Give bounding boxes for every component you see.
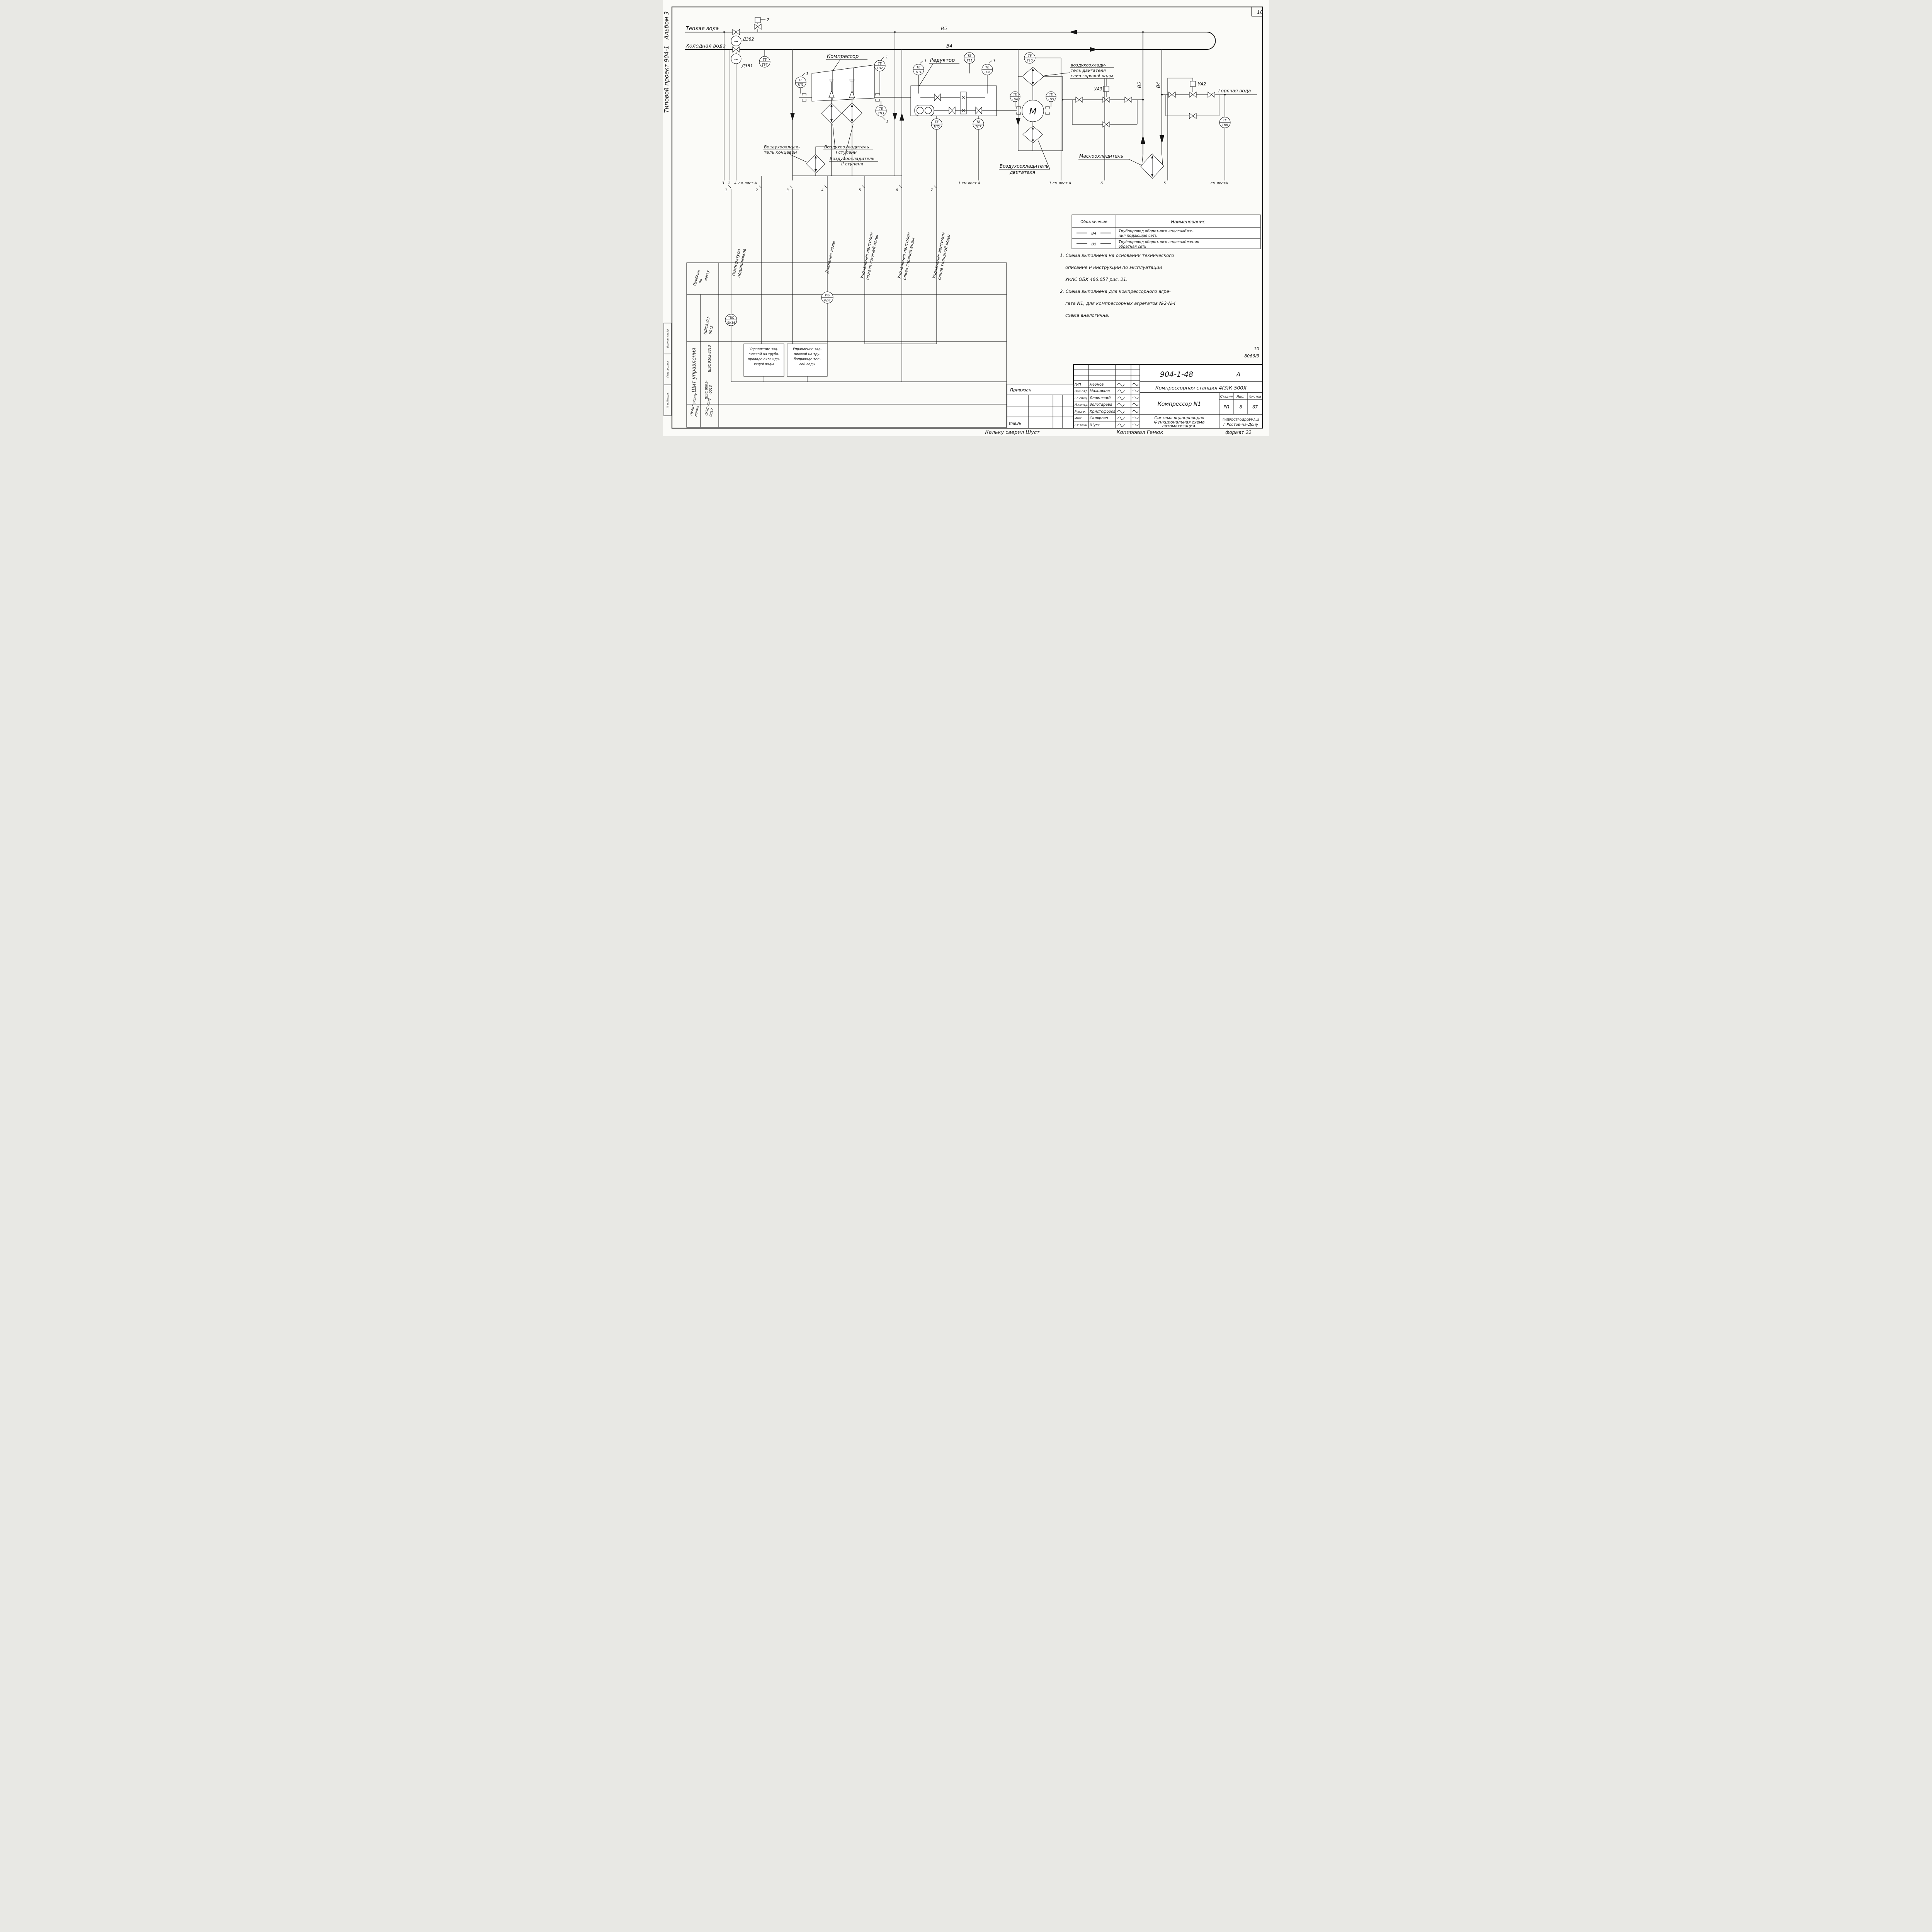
svg-text:5: 5 [1163,181,1166,185]
svg-text:ТП9: ТП9 [1048,97,1054,101]
svg-text:0012: 0012 [709,408,714,417]
svg-text:лой воды: лой воды [799,362,815,366]
svg-text:УКАС ОБХ 466.057 рис. 21.: УКАС ОБХ 466.057 рис. 21. [1065,277,1128,282]
doc-number: 904-1-48 [1160,370,1193,379]
margin-cell-label: Взамен.инв.№ [666,329,669,348]
reducer-label: Редуктор [930,58,955,63]
svg-text:3: 3 [786,188,789,192]
svg-text:Воздухоохладитель: Воздухоохладитель [1000,163,1048,169]
svg-text:2: 2 [755,188,758,192]
svg-text:схема аналогична.: схема аналогична. [1065,313,1109,318]
motor-letter: М [1029,107,1037,117]
engine-cooler-drain-label: воздухоохлади- тель двигателя слив горяч… [1044,63,1114,78]
svg-text:ШЭС 8801-: ШЭС 8801- [705,381,709,399]
svg-text:Золотарева: Золотарева [1090,403,1112,407]
svg-text:РД8: РД8 [824,299,830,302]
svg-text:~: ~ [734,56,738,63]
control-box-cooling-water: Управление зад- вижкой на трубо- проводе… [744,344,784,376]
inventory-label: Инв.№ [1009,422,1021,426]
oil-cooler-label: Маслоохладитель [1079,153,1123,159]
page-number: 10 [1257,10,1264,15]
svg-text:Ст.техн.: Ст.техн. [1075,423,1088,427]
svg-text:Гл.спец.: Гл.спец. [1075,396,1088,400]
svg-text:Мажников: Мажников [1090,389,1110,393]
motor: М [1022,100,1044,122]
project-label: Типовой проект 904-1 [663,46,670,113]
instrument-pis: PIS РД8 [821,292,833,344]
warm-water-label: Теплая вода [686,26,719,32]
svg-text:Т10: Т10 [1027,59,1032,62]
svg-text:1: 1 [725,188,727,192]
notes: 1. Схема выполнена на основании техничес… [1060,253,1176,318]
relief-valve-7: 7 [754,17,769,32]
svg-text:1: 1 [806,72,808,76]
svg-text:TRC: TRC [728,316,734,320]
svg-text:ТП7: ТП7 [975,125,982,128]
svg-text:3: 3 [722,181,724,185]
svg-text:ЛК16: ЛК16 [726,321,735,325]
svg-text:2: 2 [728,181,730,185]
unit-name: Компрессор N1 [1158,401,1201,407]
svg-text:ющей воды: ющей воды [754,362,774,366]
svg-text:воздухоохлади-: воздухоохлади- [1071,63,1106,68]
svg-text:Щит управления: Щит управления [691,348,697,393]
format-label: формат 22 [1225,430,1252,435]
margin-cell-label: Подп.и дата [666,361,669,378]
instrument-te-tp8: ТЕ ТП8 [1010,92,1020,107]
svg-text:1: 1 [924,59,927,63]
svg-text:ТП4: ТП4 [915,70,922,74]
svg-text:бопроводе теп-: бопроводе теп- [794,357,820,361]
margin-cell-label: Инв.№подл. [666,393,669,408]
instrument-te-tp7: ТЕ ТП7 1 см.лист А [958,116,984,185]
svg-text:ТП5: ТП5 [934,125,940,128]
stage-value: РП [1224,405,1230,410]
svg-text:2. Схема выполнена для компре: 2. Схема выполнена для компрессорного аг… [1060,289,1171,294]
signal-labels: Температураподшипников Давление воды Упр… [731,232,951,281]
hot-water-label: Горячая вода [1218,88,1251,94]
svg-text:1 см.лист А: 1 см.лист А [958,181,980,185]
instrument-te-tp2: ТЕ ТП2 1 [874,55,888,94]
svg-text:ТЕ: ТЕ [935,120,939,124]
svg-text:ТП6: ТП6 [984,70,990,74]
svg-text:ТЕ: ТЕ [1223,119,1227,122]
title-block: 904-1-48 А Компрессорная станция 4(3)К-5… [1073,346,1262,429]
svg-text:Трубопровод оборотного водосна: Трубопровод оборотного водоснабже- [1119,229,1194,233]
doc-small-number: 10 [1254,346,1259,351]
riser-b4: В4 [1156,49,1164,155]
svg-text:1: 1 [886,119,888,124]
svg-text:7: 7 [930,188,933,192]
svg-text:1 см.лист А: 1 см.лист А [1049,181,1071,185]
sheet-value: 8 [1240,405,1242,410]
svg-text:ТП1: ТП1 [798,83,804,87]
svg-text:Инж.: Инж. [1075,417,1083,420]
oil-cooler: Маслоохладитель [1078,153,1164,179]
svg-text:автоматизации.: автоматизации. [1162,424,1197,429]
svg-text:ТЕ: ТЕ [879,107,883,111]
svg-text:Т11: Т11 [966,59,972,62]
cold-water-label: Холодная вода [685,43,726,49]
svg-text:ТЕ: ТЕ [1028,54,1032,58]
control-box-warm-water: Управление зад- вижкой на тру- бопроводе… [787,344,827,376]
svg-text:В5: В5 [1091,242,1096,247]
svg-text:6: 6 [1100,181,1103,185]
svg-text:В4: В4 [1091,231,1096,236]
svg-text:II ступени: II ступени [841,162,863,167]
svg-text:месту: месту [704,270,711,281]
svg-text:ТП8: ТП8 [1012,97,1018,101]
svg-text:тель двигателя: тель двигателя [1071,68,1106,73]
valve-group-ua2: УА2 5 Горячая вода [1161,78,1257,185]
svg-text:-0012: -0012 [708,325,714,336]
svg-text:~: ~ [734,39,738,45]
engine-cooler-bottom [1023,122,1043,151]
reducer: Редуктор [911,58,1017,116]
d381-tag: Д381 [741,63,753,68]
svg-text:ТЕ: ТЕ [976,120,981,124]
instrument-trc: TRC ЛК16 [725,314,737,382]
svg-text:Управление зад-: Управление зад- [750,347,779,351]
svg-text:ТВ8: ТВ8 [1222,123,1228,127]
flow-arrow-right-icon [1090,47,1098,52]
svg-text:по: по [698,278,703,284]
svg-text:двигателя: двигателя [1009,170,1035,175]
station-name: Компрессорная станция 4(3)К-500Я [1155,385,1247,391]
drawing-sheet: 10 Альбом 3 Типовой проект 904-1 Взамен.… [663,0,1269,436]
svg-text:ТЕ: ТЕ [878,62,882,65]
ua2-tag: УА2 [1198,82,1206,87]
svg-text:Рук.гр.: Рук.гр. [1075,410,1086,413]
copied-by: Копировал Генюк [1117,430,1163,435]
svg-text:Шуст: Шуст [1090,423,1100,427]
svg-text:обратная сеть: обратная сеть [1119,245,1146,249]
svg-text:Обозначение: Обозначение [1080,219,1107,224]
svg-text:ния подающая сеть: ния подающая сеть [1119,234,1157,238]
svg-text:1. Схема выполнена на основани: 1. Схема выполнена на основании техничес… [1060,253,1174,258]
svg-text:Управление зад-: Управление зад- [793,347,822,351]
svg-text:Т87: Т87 [762,63,768,66]
takeoff-lines-left: 3 2 4 см.лист А [722,31,757,185]
instrument-te-tp5: ТЕ ТП5 [931,116,942,180]
svg-text:Давление воды: Давление воды [825,240,836,274]
svg-text:ТЕ: ТЕ [917,66,921,69]
sheets-value: 67 [1252,405,1258,410]
instrument-te-tb8: ТЕ ТВ8 см.листА [1211,94,1230,185]
svg-text:В5: В5 [1137,82,1142,88]
svg-text:4: 4 [734,181,736,185]
instrument-te-t87: ТЕ Т87 [759,49,770,67]
end-cooler-label: Воздухоохлади- тель концевой [763,145,807,162]
svg-text:Стадия: Стадия [1220,395,1233,399]
instrument-te-tp9: ТЕ ТП9 [1046,92,1056,107]
svg-text:Лист: Лист [1236,395,1245,399]
svg-text:Левинский: Левинский [1089,396,1111,400]
svg-text:-0013: -0013 [709,385,713,395]
svg-text:Н.контр.: Н.контр. [1075,403,1088,406]
svg-text:Приборы: Приборы [693,269,701,286]
revision: А [1236,371,1240,378]
compressor-label: Компрессор [827,54,859,60]
engine-cooler-label: Воздухоохладитель двигателя [999,141,1050,175]
svg-text:1: 1 [993,59,995,63]
schematic-canvas: 10 Альбом 3 Типовой проект 904-1 Взамен.… [663,0,1269,436]
svg-text:6: 6 [896,188,898,192]
instrument-te-t11: ТЕ Т11 [964,53,975,73]
svg-text:ТЕ: ТЕ [1049,93,1053,96]
svg-text:Воздухоохлади-: Воздухоохлади- [764,145,800,150]
d382-tag: Д382 [742,37,754,42]
svg-text:1: 1 [886,55,888,60]
svg-text:Нач.отд.: Нач.отд. [1075,389,1088,393]
svg-text:проводе охлажда-: проводе охлажда- [748,357,780,361]
svg-text:ТЕ: ТЕ [985,66,990,69]
doc-small-code: 8066/3 [1244,354,1259,359]
valve-d382: ~ Д382 [731,29,754,52]
stage1-cooler-label: Воздухоохладитель I ступени [823,124,873,155]
organization-city: г Ростов-на-Дону [1223,423,1259,427]
pipeline-warm-water: Теплая вода Холодная вода В5 В4 [685,26,1216,52]
svg-text:ТЕ: ТЕ [799,78,803,82]
svg-text:описания и инструкции по эксп: описания и инструкции по эксплуатации [1065,265,1162,270]
svg-text:вижкой на тру-: вижкой на тру- [794,352,821,356]
svg-text:В4: В4 [1156,82,1161,88]
compressor: Компрессор [799,54,911,101]
svg-text:Листов: Листов [1248,395,1261,399]
svg-text:гата N1, для компрессорных агр: гата N1, для компрессорных агрегатов №2-… [1065,301,1176,306]
svg-text:вижкой на трубо-: вижкой на трубо- [748,352,779,356]
legend-table: Обозначение Наименование В4 Трубопровод … [1072,215,1260,249]
ua3-tag: УА3 [1094,87,1102,92]
svg-text:5: 5 [859,188,861,192]
attached-label: Привязан [1010,388,1031,393]
footer-annotations: Кальку сверил Шуст Копировал Генюк форма… [985,430,1251,435]
valve-d381: ~ Д381 [731,52,753,68]
traced-by: Кальку сверил Шуст [985,430,1040,435]
svg-text:Склярово: Склярово [1090,416,1108,420]
panel-section: Приборы по месту ЩЭС8503--0012 Щит управ… [687,263,1007,427]
svg-text:PIS: PIS [825,294,830,297]
svg-text:Трубопровод оборотного водосна: Трубопровод оборотного водоснабжения [1119,240,1199,244]
svg-text:ТП3: ТП3 [878,112,884,115]
svg-text:Воздухоохладитель: Воздухоохладитель [824,145,869,150]
svg-text:ШЭС 9102-3313: ШЭС 9102-3313 [708,345,712,372]
b5-line-label: В5 [941,26,947,31]
svg-text:Христофоров: Христофоров [1089,410,1116,414]
svg-text:ГИП: ГИП [1075,383,1081,386]
b4-line-label: В4 [946,43,952,49]
attachment-table: Привязан Инв.№ [1007,384,1073,428]
svg-text:Леонов: Леонов [1089,383,1104,387]
svg-text:тель концевой: тель концевой [764,150,797,155]
engine-cooler-top [1022,67,1044,100]
svg-text:4: 4 [821,188,823,192]
svg-text:Воздухоохладитель: Воздухоохладитель [830,156,874,161]
svg-text:Наименование: Наименование [1171,219,1205,224]
svg-text:ТЕ: ТЕ [968,54,972,58]
svg-text:ТЕ: ТЕ [763,58,767,61]
svg-text:ТП2: ТП2 [877,66,883,70]
instrument-te-tp3: ТЕ ТП3 1 [876,101,888,124]
flow-arrow-left-icon [1069,30,1077,34]
album-label: Альбом 3 [663,11,670,40]
svg-text:см.листА: см.листА [1211,181,1228,185]
svg-text:ТЕ: ТЕ [1013,93,1017,96]
svg-text:см.лист А: см.лист А [738,181,757,185]
instrument-te-tp1: ТЕ ТП1 1 [795,72,808,94]
valve-group-ua3: УА3 6 [1063,78,1144,185]
svg-text:слив горячей воды: слив горячей воды [1071,73,1113,78]
margin-labels: Альбом 3 Типовой проект 904-1 Взамен.инв… [663,11,671,416]
relief-tag: 7 [767,17,769,22]
organization-name: ГИПРОСТРОЙДОРМАШ [1223,417,1259,422]
